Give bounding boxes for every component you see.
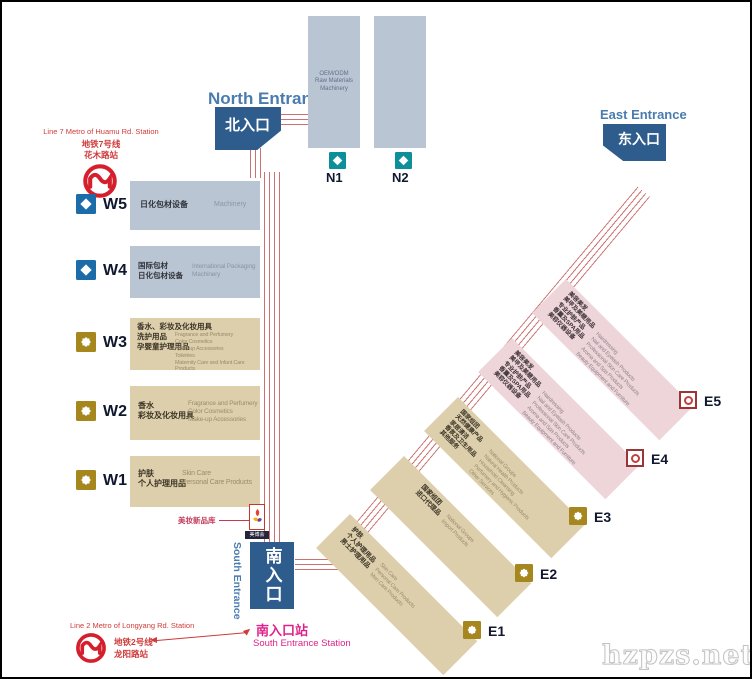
hall-w3: 香水、彩妆及化妆用具 洗护用品 孕婴童护理用品 Fragrance and Pe… [130,318,260,370]
cbe-logo-icon [252,508,263,527]
hall-e2-label: E2 [540,566,557,582]
new-products-logo-box [249,504,265,530]
corridor-north-connector [280,114,309,127]
hall-e5-en: Hairdressing Nail and Eyelash Products P… [574,331,650,407]
hall-w4-en: International Packaging Machinery [192,263,255,279]
hall-w2-label: W2 [103,403,127,421]
hall-w3-icon [76,332,96,357]
south-entrance-en: South Entrance [231,542,243,654]
hall-w1: 护肤 个人护理用品 Skin Care Personal Care Produc… [130,456,260,507]
hall-e2-zh: 国家组团 进口代理品 [413,484,447,518]
hall-n1: OEM/ODM Raw Materials Machinery [308,16,360,148]
hall-n1-label: N1 [326,170,343,185]
hall-w4-zh: 国际包材 日化包材设备 [138,261,183,281]
hall-n2-label: N2 [392,170,409,185]
hall-e4-icon [626,449,644,467]
south-entrance-zh: 南入口 [260,547,285,604]
hall-n1-desc: OEM/ODM Raw Materials Machinery [315,71,353,94]
hall-e1-icon [463,621,481,644]
hall-w1-zh: 护肤 个人护理用品 [138,469,186,490]
metro2-arrowhead-right [243,626,252,635]
hall-e1-en: Skin Care Personal Care Products Men Car… [368,562,421,615]
hall-w3-en: Fragrance and Perfumery Color Cosmetics … [175,332,260,373]
hall-e5-icon [679,391,697,409]
hall-w4-icon [76,260,96,285]
expo-floor-plan: North Entrance 北入口 East Entrance 东入口 Lin… [0,0,752,679]
hall-w5: 日化包材设备 Machinery [130,181,260,230]
hall-w3-label: W3 [103,334,127,352]
metro2-line: 地铁2号线 [114,636,153,648]
north-entrance-box: 北入口 [215,107,281,150]
metro2-arrowhead-left [150,637,157,643]
hall-w2-icon [76,401,96,426]
north-entrance-zh: 北入口 [225,114,270,135]
south-entrance-box: 南入口 [250,542,294,609]
new-products-logo-label: 美博会 [245,531,269,539]
hall-w1-icon [76,470,96,495]
east-entrance-zh: 东入口 [618,129,660,149]
hall-w2-zh: 香水 彩妆及化妆用具 [138,401,194,422]
new-products-annotation: 美妆新品库 [178,515,216,526]
hall-w5-label: W5 [103,196,127,214]
hall-w5-zh: 日化包材设备 [140,200,188,210]
corridor-main-vertical [264,172,280,549]
hall-e1-label: E1 [488,623,505,639]
hall-w4: 国际包材 日化包材设备 International Packaging Mach… [130,246,260,298]
hall-w1-label: W1 [103,472,127,490]
hall-e3-en: National Groups Natural Health Products … [467,449,545,527]
hall-e1-zh: 护肤 个人护理用品 男士护理用品 [338,526,382,570]
corridor-north-stub [250,148,261,178]
south-station-en: South Entrance Station [253,638,351,649]
metro2-en: Line 2 Metro of Longyang Rd. Station [70,621,194,630]
metro7-en: Line 7 Metro of Huamu Rd. Station [35,127,167,136]
hall-e3-icon [569,507,587,530]
hall-w2-en: Fragrance and Perfumery Color Cosmetics … [188,400,257,424]
new-products-callout-line [219,520,249,521]
hall-e4-en: Hairdressing Nail and Eyelash Products P… [520,390,596,466]
hall-e3-label: E3 [594,509,611,525]
hall-w4-label: W4 [103,262,127,280]
hall-w5-en: Machinery [214,201,246,210]
metro7-station: 花木路站 [35,149,167,161]
hall-n2 [374,16,426,148]
hall-e2-icon [515,564,533,587]
hall-e5-label: E5 [704,393,721,409]
metro-logo-line2 [75,632,107,669]
east-entrance-label: East Entrance [600,107,687,122]
hall-w2: 香水 彩妆及化妆用具 Fragrance and Perfumery Color… [130,386,260,440]
hall-e2-en: National Groups Import Products [439,514,475,550]
hall-e4-label: E4 [651,451,668,467]
metro2-station: 龙阳路站 [114,648,148,660]
hall-w1-en: Skin Care Personal Care Products [182,470,252,488]
hall-w5-icon [76,194,96,219]
east-entrance-box: 东入口 [603,124,666,161]
south-station-zh: 南入口站 [256,620,308,639]
site-watermark: hzpzs.net [602,640,752,671]
